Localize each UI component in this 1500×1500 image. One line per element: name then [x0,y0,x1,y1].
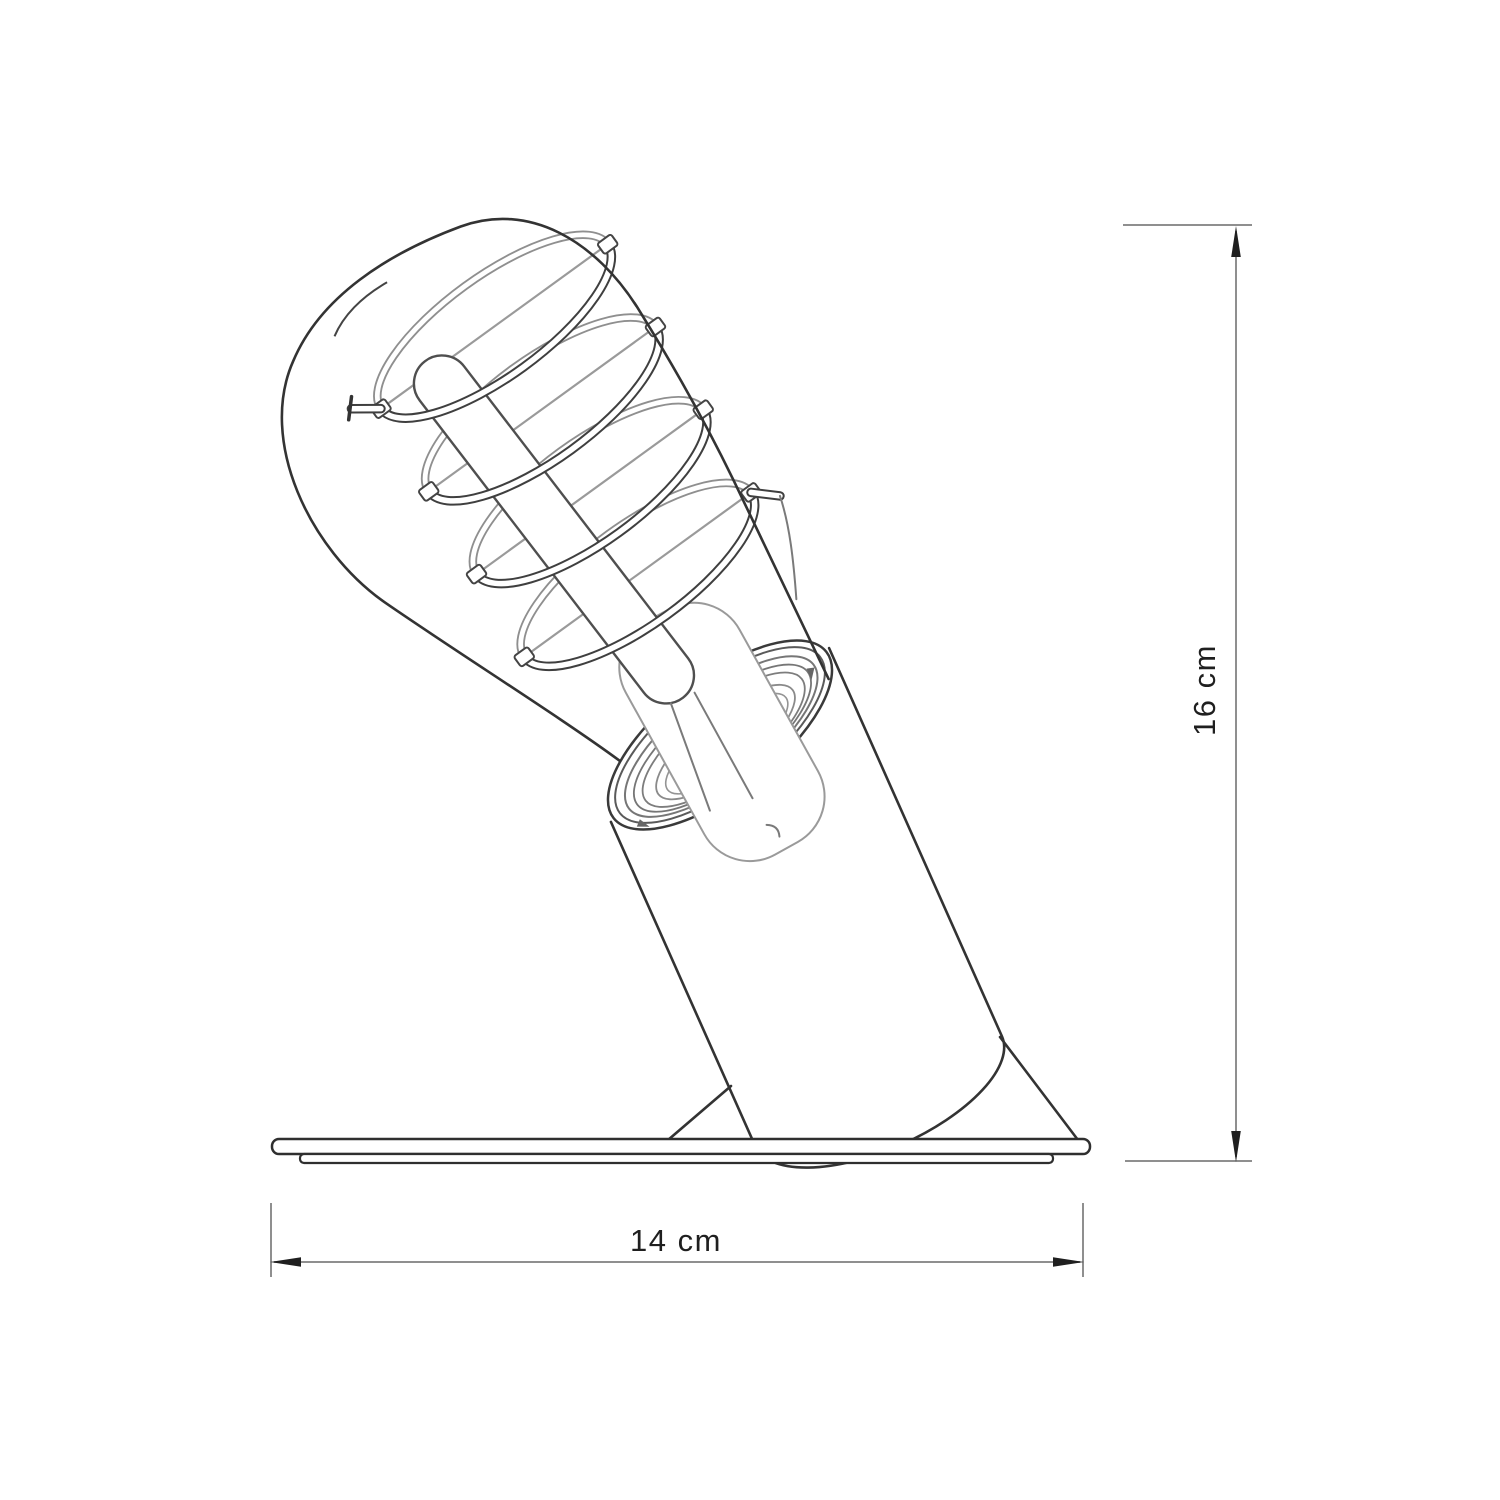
height-dimension-label: 16 cm [1187,644,1223,736]
bulb-highlight-arc [323,282,398,336]
width-arrow-left [270,1257,301,1266]
base-plate-top [272,1139,1090,1154]
width-dimension-label: 14 cm [630,1223,722,1259]
lamp-assembly [225,151,1041,1261]
base-plate-bottom [300,1154,1053,1163]
width-arrow-right [1053,1257,1084,1266]
technical-drawing-svg [0,0,1500,1500]
height-arrow-up [1231,226,1241,257]
height-arrow-down [1231,1131,1241,1162]
page: 16 cm 14 cm [0,0,1500,1500]
base [272,1139,1090,1163]
